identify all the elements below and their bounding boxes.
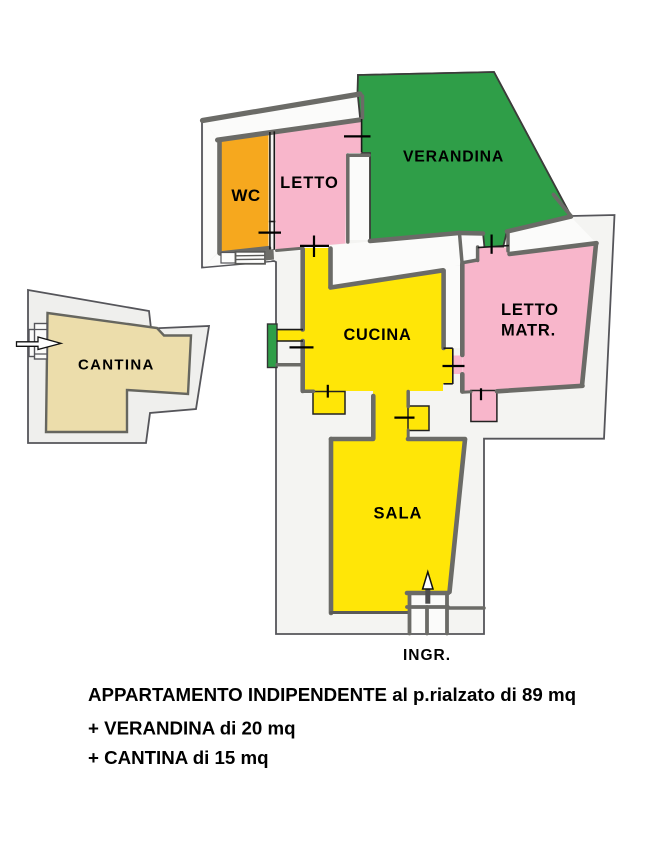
svg-text:CANTINA: CANTINA <box>78 356 155 373</box>
svg-text:MATR.: MATR. <box>501 322 556 340</box>
svg-text:SALA: SALA <box>374 505 423 523</box>
svg-text:+ CANTINA di 15 mq: + CANTINA di 15 mq <box>88 747 269 768</box>
svg-text:+ VERANDINA di 20 mq: + VERANDINA di 20 mq <box>88 718 296 739</box>
svg-text:VERANDINA: VERANDINA <box>403 149 504 166</box>
svg-text:LETTO: LETTO <box>280 174 339 192</box>
svg-text:WC: WC <box>231 186 260 205</box>
svg-text:LETTO: LETTO <box>501 301 559 319</box>
svg-text:INGR.: INGR. <box>403 647 451 664</box>
svg-text:CUCINA: CUCINA <box>343 326 411 344</box>
svg-text:APPARTAMENTO INDIPENDENTE al p: APPARTAMENTO INDIPENDENTE al p.rialzato … <box>88 684 576 705</box>
